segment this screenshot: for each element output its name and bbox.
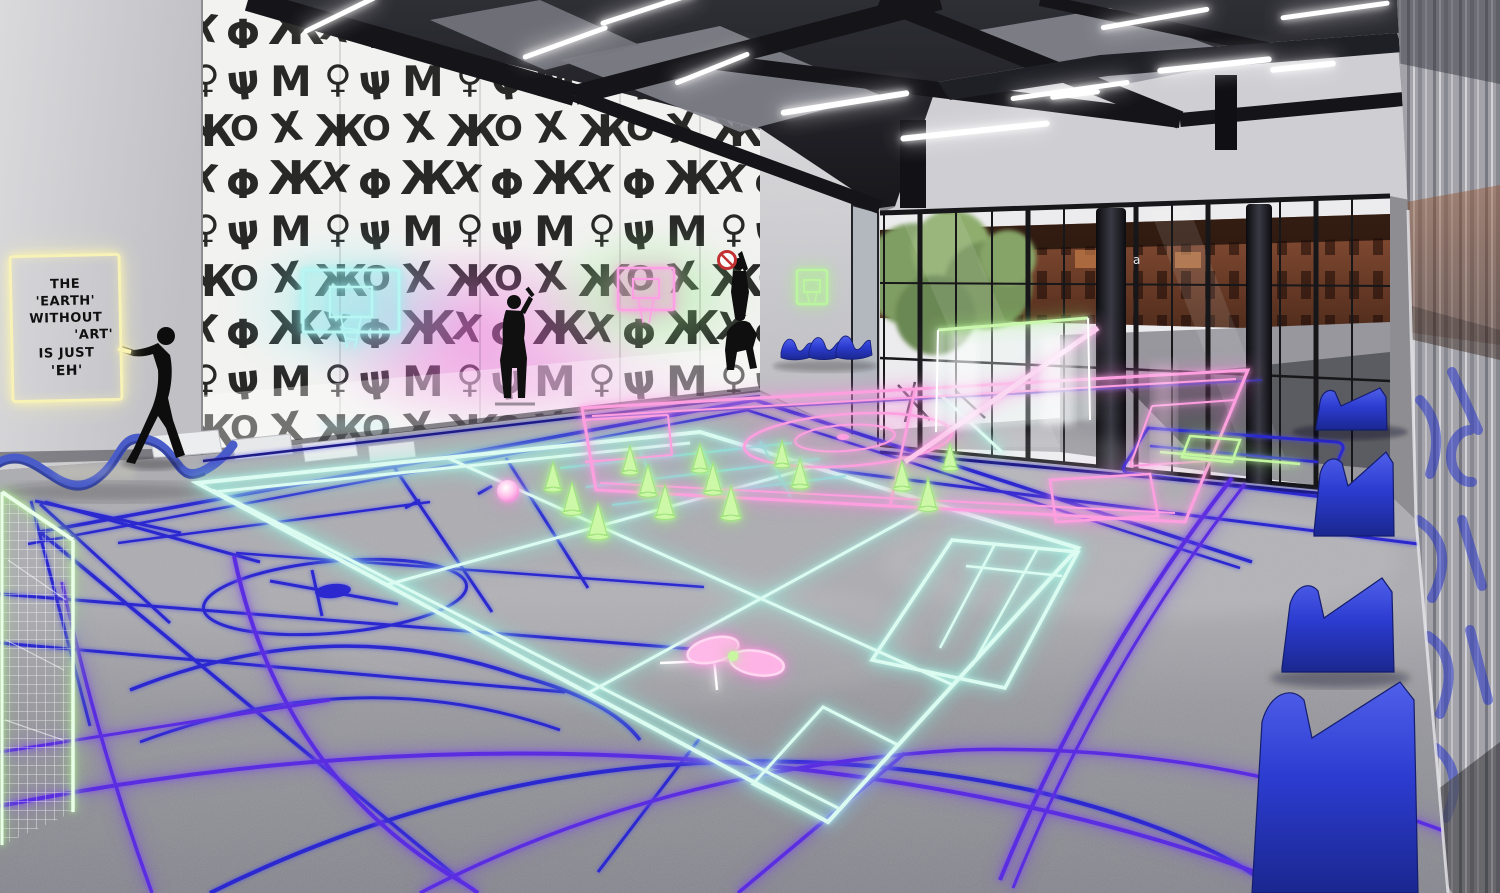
sign-line: WITHOUT — [13, 309, 119, 328]
glowing-shuttle-ball — [728, 651, 738, 661]
glass-door — [852, 205, 878, 447]
sign-line: 'ART' — [13, 326, 119, 345]
hanger-column — [900, 120, 926, 208]
net-reflection-beam — [1152, 368, 1176, 474]
sign-line: 'EH' — [14, 361, 120, 382]
scene-canvas: Ж X Φ M ♀ Ψ X Ж O — [0, 0, 1500, 893]
glowing-goal-net — [2, 492, 73, 845]
neon-quote-sign: THE 'EARTH' WITHOUT 'ART' IS JUST 'EH' — [8, 253, 123, 403]
window-pillar — [1246, 204, 1272, 488]
green-neon-basketball-hoop — [797, 270, 827, 304]
glowing-pink-ball — [497, 480, 519, 502]
sign-line: IS JUST — [13, 343, 119, 362]
sign-line: THE — [12, 275, 118, 294]
window-decal-letter: a — [1133, 253, 1140, 267]
hanger-column — [1215, 75, 1237, 150]
sports-hall-render: Ж X Φ M ♀ Ψ X Ж O — [0, 0, 1500, 893]
sign-line: 'EARTH' — [12, 292, 118, 311]
